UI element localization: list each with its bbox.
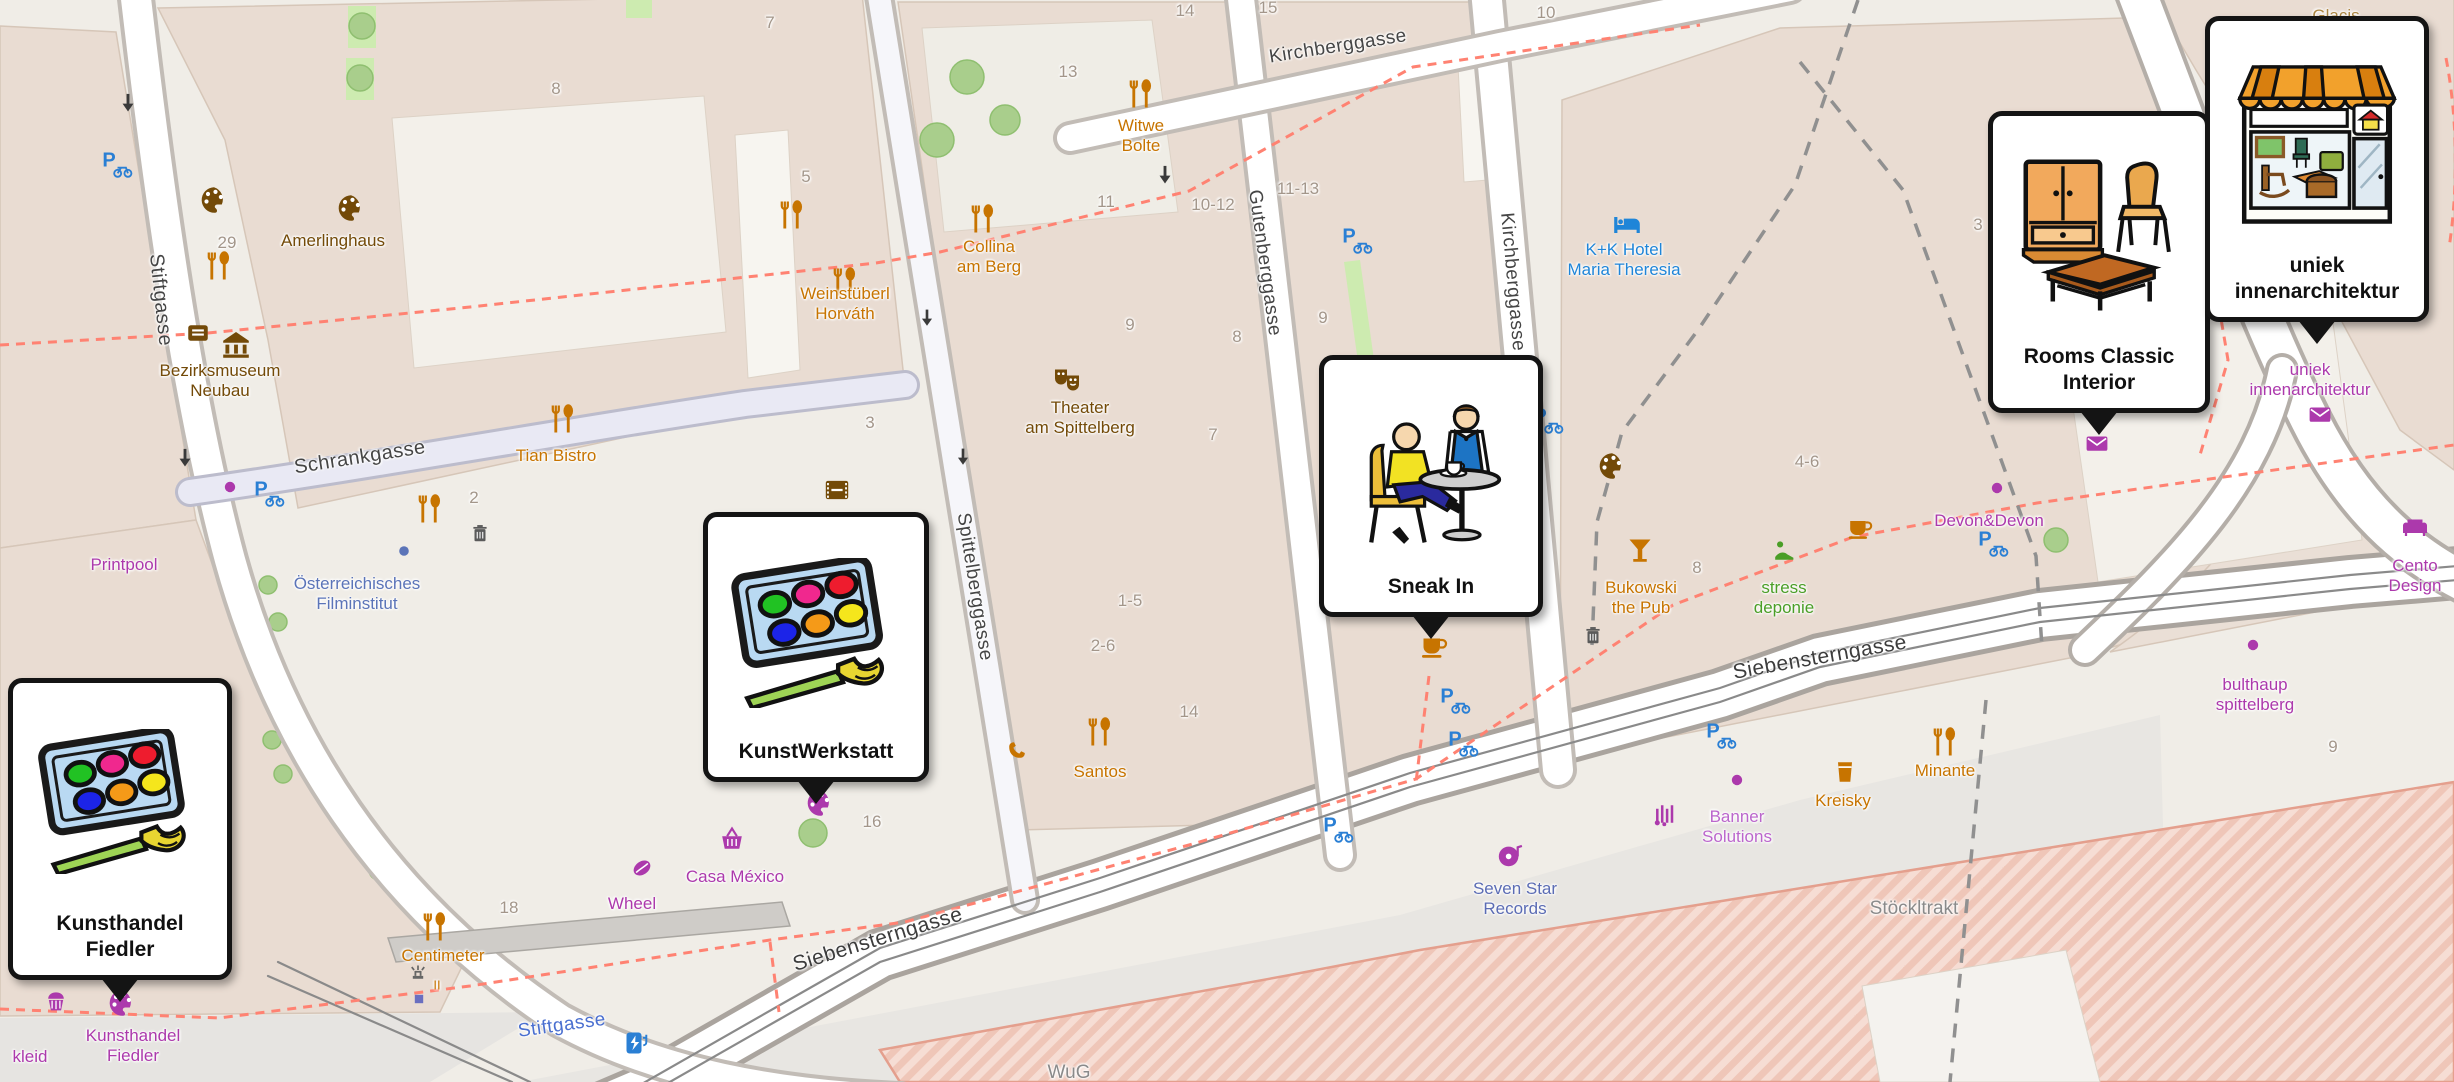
card-pointer [2080,411,2118,435]
card-label: Rooms Classic Interior [2024,344,2175,397]
paint-palette-icon [714,527,918,739]
marker-card-uniek-innenarchitektur[interactable]: uniek innenarchitektur [2205,16,2429,322]
shop-front-icon [2216,31,2418,253]
card-label: Sneak In [1388,574,1474,600]
marker-card-sneak-in[interactable]: Sneak In [1319,355,1543,617]
card-pointer [1412,615,1450,639]
card-pointer [2298,320,2336,344]
cafe-guest-and-waiter-icon [1330,370,1532,574]
marker-card-rooms-classic-interior[interactable]: Rooms Classic Interior [1988,111,2210,413]
card-label: Kunsthandel Fiedler [56,911,183,964]
furniture-set-icon [1999,126,2199,344]
map-canvas[interactable]: P [0,0,2454,1082]
card-label: KunstWerkstatt [739,739,894,765]
card-pointer [101,978,139,1002]
paint-palette-icon [19,693,221,911]
marker-card-kunsthandel-fiedler[interactable]: Kunsthandel Fiedler [8,678,232,980]
card-pointer [797,780,835,804]
marker-card-kunstwerkstatt[interactable]: KunstWerkstatt [703,512,929,782]
card-label: uniek innenarchitektur [2235,253,2400,306]
